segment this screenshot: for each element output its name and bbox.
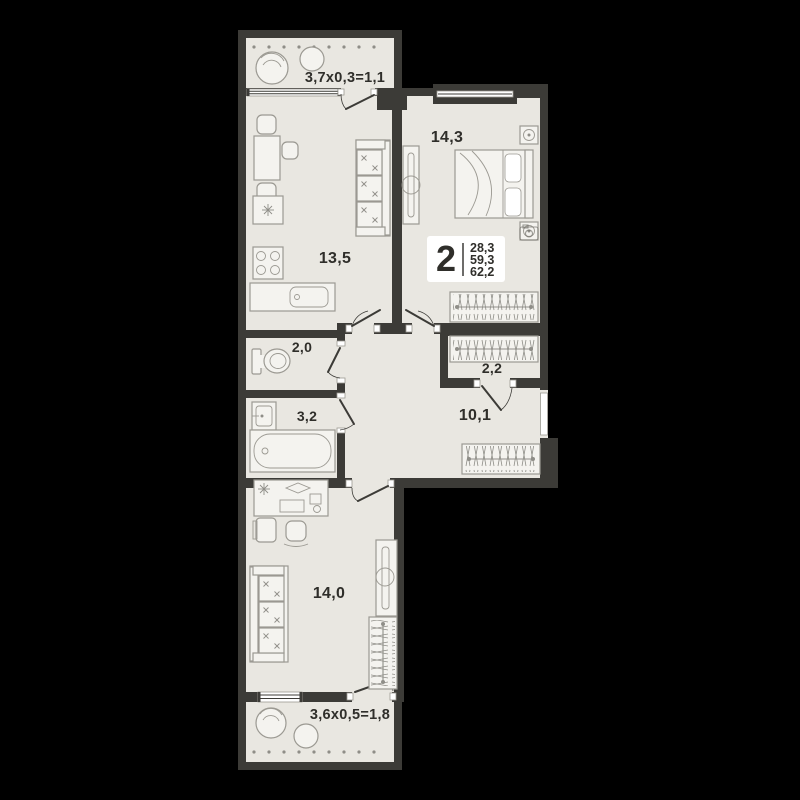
door-entrance (540, 390, 548, 438)
label-closet: 2,2 (482, 360, 502, 376)
pillow-icon (505, 154, 521, 182)
chair-icon (257, 115, 276, 134)
label-balcony-bottom: 3,6x0,5=1,8 (310, 707, 390, 723)
label-balcony-top: 3,7x0,3=1,1 (305, 70, 385, 86)
wall-segment (238, 762, 402, 770)
lounge-chair-icon (256, 52, 288, 84)
wall-segment (512, 84, 548, 98)
lounge-chair-icon (256, 708, 286, 738)
badge-area-total: 62,2 (470, 265, 494, 279)
wardrobe-icon (369, 617, 397, 689)
tv-stand-icon (376, 540, 397, 616)
pillow-icon (505, 188, 521, 216)
furniture-wc (252, 349, 290, 374)
nightstand-icon (520, 126, 538, 144)
wall-segment (238, 390, 345, 398)
window-kitchen-balcony (247, 89, 340, 96)
armchair-icon (253, 518, 276, 542)
badge-room-count: 2 (436, 238, 456, 279)
label-wc: 2,0 (292, 339, 312, 355)
wall-segment (238, 30, 246, 770)
double-bed-icon (455, 150, 533, 218)
wall-segment (392, 96, 402, 334)
fridge-icon (253, 196, 283, 224)
toilet-icon (252, 349, 290, 374)
round-table-icon (300, 47, 324, 71)
window-bedroom (433, 84, 517, 104)
label-bedroom: 14,3 (431, 129, 463, 146)
dining-table-icon (254, 136, 280, 180)
kitchen-sink-icon (250, 283, 335, 311)
round-table-icon (294, 724, 318, 748)
wall-segment (440, 328, 548, 336)
floorplan-canvas: 3,7x0,3=1,1 14,3 13,5 2,0 3,2 2,2 10,1 1… (0, 0, 800, 800)
label-room: 14,0 (313, 585, 345, 602)
floorplan-svg: 3,7x0,3=1,1 14,3 13,5 2,0 3,2 2,2 10,1 1… (0, 0, 800, 800)
wall-segment (394, 30, 402, 96)
sofa-icon (250, 566, 288, 662)
wall-segment (377, 88, 407, 110)
wall-segment (394, 700, 402, 770)
bathtub-icon (250, 430, 335, 472)
label-bathroom: 3,2 (297, 408, 317, 424)
furniture-closet (450, 336, 538, 362)
desk-icon (254, 480, 328, 516)
window-room-balcony (258, 692, 302, 702)
stove-icon (253, 247, 283, 279)
furniture-hallway (462, 444, 540, 474)
chair-icon (282, 142, 298, 159)
washbasin-icon (252, 402, 276, 430)
dresser-icon (402, 146, 420, 224)
wardrobe-icon (462, 444, 540, 474)
label-hallway: 10,1 (459, 407, 491, 424)
wardrobe-icon (450, 292, 538, 322)
wardrobe-icon (450, 336, 538, 362)
wall-segment (238, 30, 402, 38)
sofa-icon (356, 140, 390, 236)
label-kitchen-living: 13,5 (319, 250, 351, 267)
wall-segment (238, 330, 345, 338)
